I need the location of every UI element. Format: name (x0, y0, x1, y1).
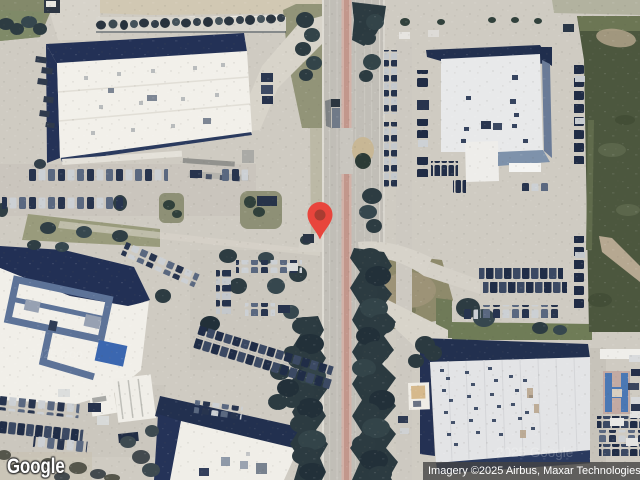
svg-text:2025 Goo: 2025 Goo (30, 347, 83, 361)
svg-text:2025 Google: 2025 Google (496, 445, 573, 460)
